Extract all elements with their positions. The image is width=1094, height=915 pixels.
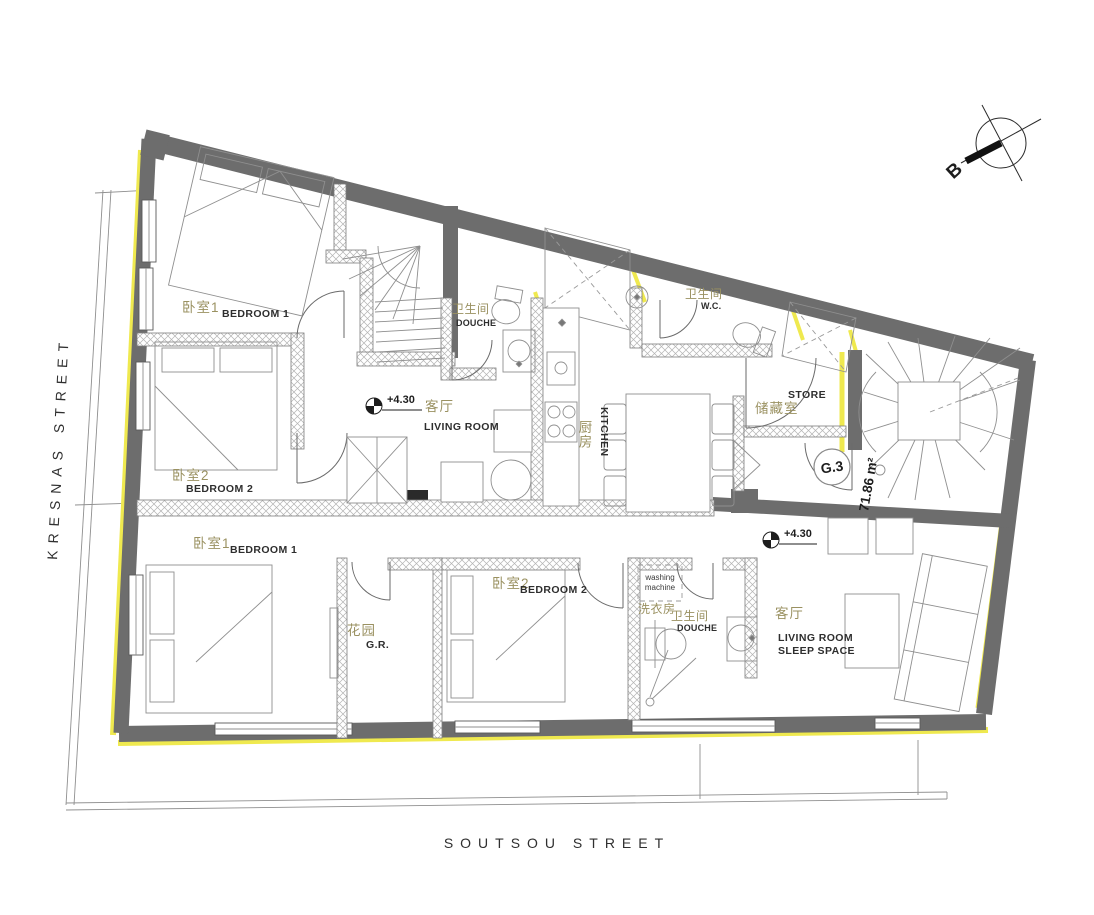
label-store-zh: 储藏室	[755, 400, 799, 416]
label-kitchen-zh: 厨房	[577, 420, 593, 449]
unit-badge: G.3 71.86 m²	[814, 449, 880, 513]
window	[632, 720, 775, 732]
shower-corner	[646, 650, 696, 706]
label-washing-line2: machine	[645, 583, 676, 592]
window	[215, 723, 352, 735]
bed	[146, 565, 272, 713]
level-marker-upper: +4.30	[366, 394, 422, 414]
window	[139, 268, 153, 330]
kitchen-counter	[543, 308, 579, 506]
label-up-douche-en: DOUCHE	[456, 318, 496, 328]
label-up-bedroom2-en: BEDROOM 2	[186, 483, 253, 495]
label-up-bedroom2-zh: 卧室2	[172, 467, 210, 483]
window	[455, 721, 540, 733]
partition-walls	[137, 184, 846, 738]
label-lo-bedroom1-en: BEDROOM 1	[230, 544, 297, 556]
unit-area: 71.86 m²	[856, 456, 880, 512]
label-gr-zh: 花园	[347, 623, 376, 638]
label-gr-en: G.R.	[366, 639, 389, 651]
window	[875, 718, 920, 729]
north-compass: B	[943, 105, 1041, 184]
label-up-living-zh: 客厅	[425, 398, 454, 414]
label-up-bedroom1-en: BEDROOM 1	[222, 308, 289, 320]
sink	[503, 330, 535, 372]
label-lo-douche-zh: 卫生间	[671, 609, 709, 623]
level-label-upper: +4.30	[387, 394, 415, 406]
street-label-kresnas: KRESNAS STREET	[44, 336, 72, 561]
level-label-lower: +4.30	[784, 528, 812, 540]
label-store-en: STORE	[788, 389, 826, 401]
street-label-soutsou: SOUTSOU STREET	[444, 835, 670, 851]
wardrobe	[347, 437, 407, 503]
label-laundry-zh: 洗衣房	[638, 601, 676, 616]
label-lo-bedroom1-zh: 卧室1	[193, 535, 231, 551]
window	[129, 575, 143, 655]
label-up-bedroom1-zh: 卧室1	[182, 299, 220, 315]
level-marker-lower: +4.30	[763, 528, 817, 548]
sofa	[894, 554, 987, 712]
floor-plan: +4.30 +4.30 G.3 71.86 m² B 卧室1 BEDROOM 1…	[0, 0, 1094, 915]
label-wc-zh: 卫生间	[685, 287, 723, 301]
label-up-douche-zh: 卫生间	[452, 302, 490, 316]
label-lo-bedroom2-en: BEDROOM 2	[520, 584, 587, 596]
label-washing-line1: washing	[644, 573, 674, 582]
label-lo-douche-en: DOUCHE	[677, 623, 717, 633]
window	[136, 362, 150, 430]
label-kitchen-en: KITCHEN	[598, 407, 610, 456]
label-up-living-en: LIVING ROOM	[424, 421, 499, 433]
label-wc-en: W.C.	[701, 301, 721, 311]
label-lo-living-en2: SLEEP SPACE	[778, 645, 855, 657]
compass-label: B	[943, 159, 967, 184]
label-lo-living-zh: 客厅	[775, 605, 804, 621]
window	[142, 200, 156, 262]
label-lo-living-en1: LIVING ROOM	[778, 632, 853, 644]
dining-table	[604, 394, 734, 512]
unit-id: G.3	[820, 457, 845, 476]
bed	[155, 342, 277, 470]
